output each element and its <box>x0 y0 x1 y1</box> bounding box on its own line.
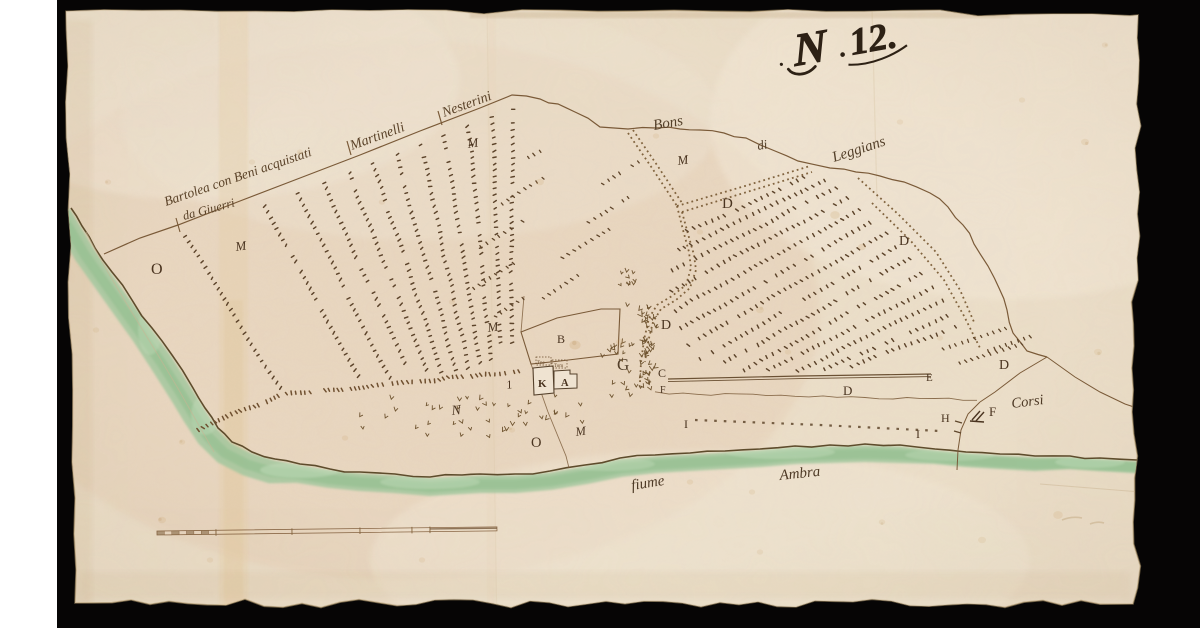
svg-text:Tne: Tne <box>537 361 546 366</box>
svg-text:C: C <box>658 366 666 380</box>
svg-text:D: D <box>999 358 1009 373</box>
svg-text:D: D <box>843 383 852 398</box>
svg-text:O: O <box>531 435 541 451</box>
svg-text:H: H <box>941 411 950 425</box>
svg-text:I: I <box>684 417 688 431</box>
svg-text:I: I <box>916 427 920 441</box>
svg-text:Tom: Tom <box>554 364 563 369</box>
svg-text:B: B <box>557 332 565 346</box>
svg-text:K: K <box>538 378 547 390</box>
svg-text:12.: 12. <box>846 14 900 64</box>
svg-text:E: E <box>926 372 933 384</box>
svg-text:O: O <box>151 261 163 278</box>
svg-text:N: N <box>791 19 830 76</box>
svg-text:G: G <box>617 355 629 374</box>
svg-text:F: F <box>989 404 996 419</box>
svg-text:F: F <box>660 385 666 396</box>
svg-text:D: D <box>661 318 671 333</box>
svg-text:A: A <box>561 378 569 389</box>
svg-text:D: D <box>899 234 909 249</box>
svg-text:D: D <box>722 196 733 212</box>
